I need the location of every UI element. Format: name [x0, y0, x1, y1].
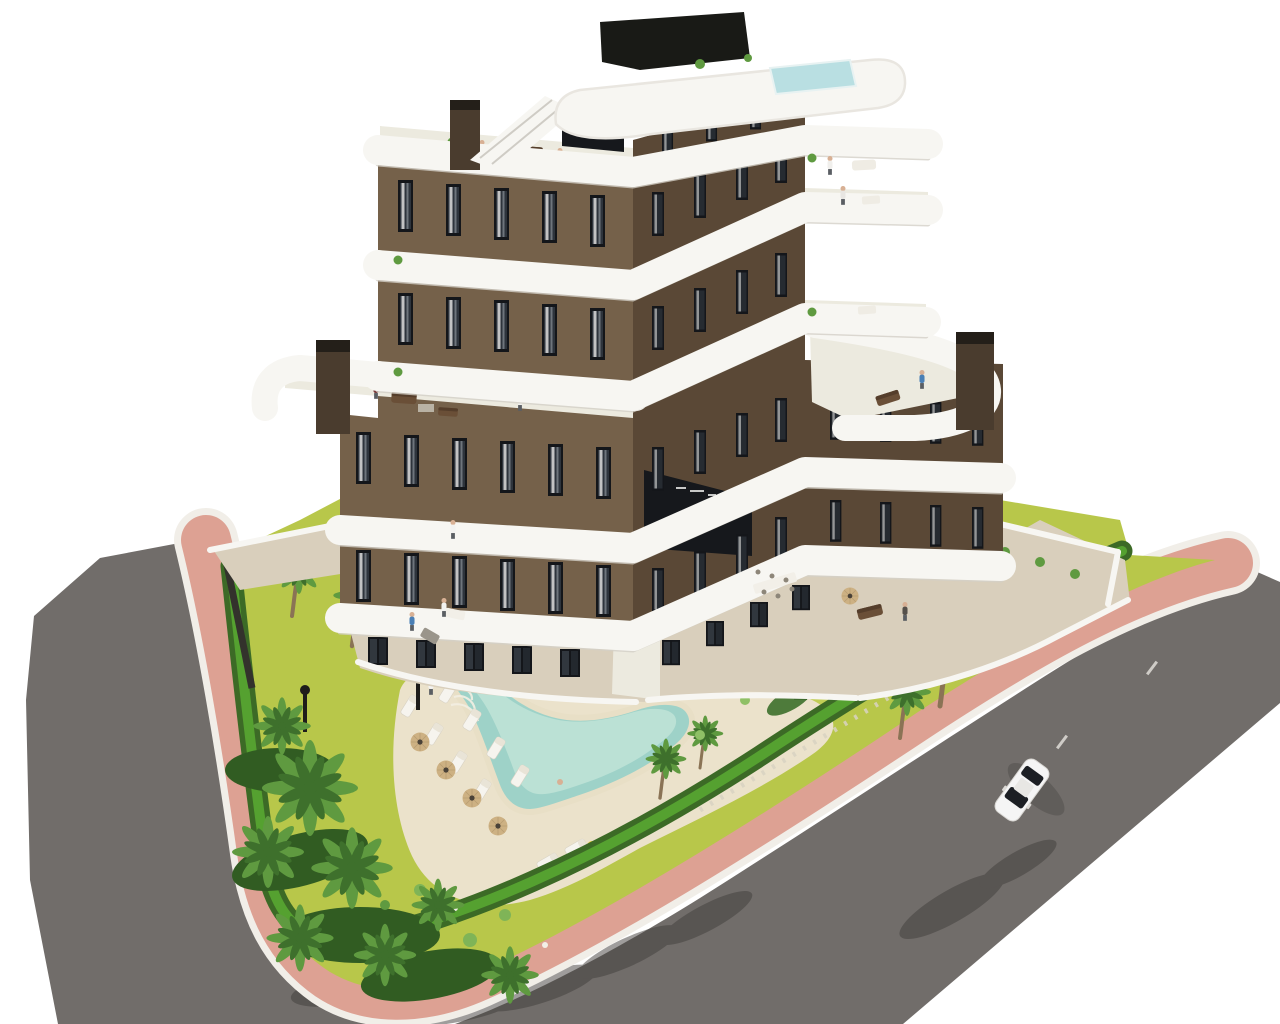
balcony-person	[450, 520, 455, 539]
roof-plant	[695, 59, 705, 69]
roof-plant	[744, 54, 752, 62]
chimney	[316, 340, 350, 434]
chimney	[956, 332, 994, 430]
render-canvas	[0, 0, 1280, 1024]
aerial-render	[0, 0, 1280, 1024]
balcony-person	[840, 186, 845, 205]
